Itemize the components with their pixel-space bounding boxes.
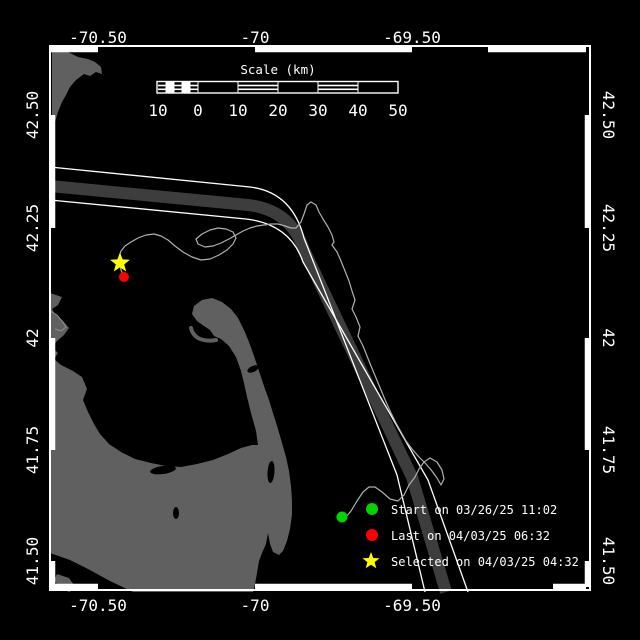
map-start-dot <box>337 512 348 523</box>
axis-label-lon: -70.50 <box>69 596 127 615</box>
scale-tick-label: 50 <box>388 101 407 120</box>
axis-label-lat: 42.50 <box>599 91 618 139</box>
axis-label-lon: -69.50 <box>383 28 441 47</box>
legend-start-dot-icon <box>366 503 378 515</box>
legend-start-label: Start on 03/26/25 11:02 <box>391 503 557 517</box>
scale-tick-label: 30 <box>308 101 327 120</box>
axis-label-lat: 42 <box>23 328 42 347</box>
axis-label-lat: 41.75 <box>23 426 42 474</box>
scale-tick-label: 20 <box>268 101 287 120</box>
legend-last-dot-icon <box>366 529 378 541</box>
axis-labels-top: -70.50 -70 -69.50 <box>69 28 441 47</box>
harbor-wellfleet <box>242 398 249 410</box>
axis-label-lon: -70 <box>241 596 270 615</box>
axis-label-lat: 41.50 <box>23 537 42 585</box>
scale-tick-label: 0 <box>193 101 203 120</box>
legend-selected-label: Selected on 04/03/25 04:32 <box>391 555 579 569</box>
scale-tick-label: 10 <box>148 101 167 120</box>
scale-tick-label: 10 <box>228 101 247 120</box>
scale-bar-title: Scale (km) <box>240 62 315 77</box>
harbor-notch <box>173 507 179 519</box>
axis-label-lon: -70.50 <box>69 28 127 47</box>
axis-label-lon: -70 <box>241 28 270 47</box>
axis-label-lat: 42.50 <box>23 91 42 139</box>
axis-label-lat: 42.25 <box>23 204 42 252</box>
axis-label-lat: 42.25 <box>599 204 618 252</box>
axis-label-lon: -69.50 <box>383 596 441 615</box>
legend-last-label: Last on 04/03/25 06:32 <box>391 529 550 543</box>
map-canvas: Scale (km) 10 0 10 20 30 40 50 -70.50 -7… <box>0 0 640 640</box>
map-last-dot <box>119 272 129 282</box>
scale-tick-label: 40 <box>348 101 367 120</box>
legend: Start on 03/26/25 11:02 Last on 04/03/25… <box>362 503 578 569</box>
axis-label-lat: 41.50 <box>599 537 618 585</box>
drifter-track-map: Scale (km) 10 0 10 20 30 40 50 -70.50 -7… <box>0 0 640 640</box>
axis-labels-bottom: -70.50 -70 -69.50 <box>69 596 441 615</box>
axis-label-lat: 41.75 <box>599 426 618 474</box>
axis-label-lat: 42 <box>599 328 618 347</box>
